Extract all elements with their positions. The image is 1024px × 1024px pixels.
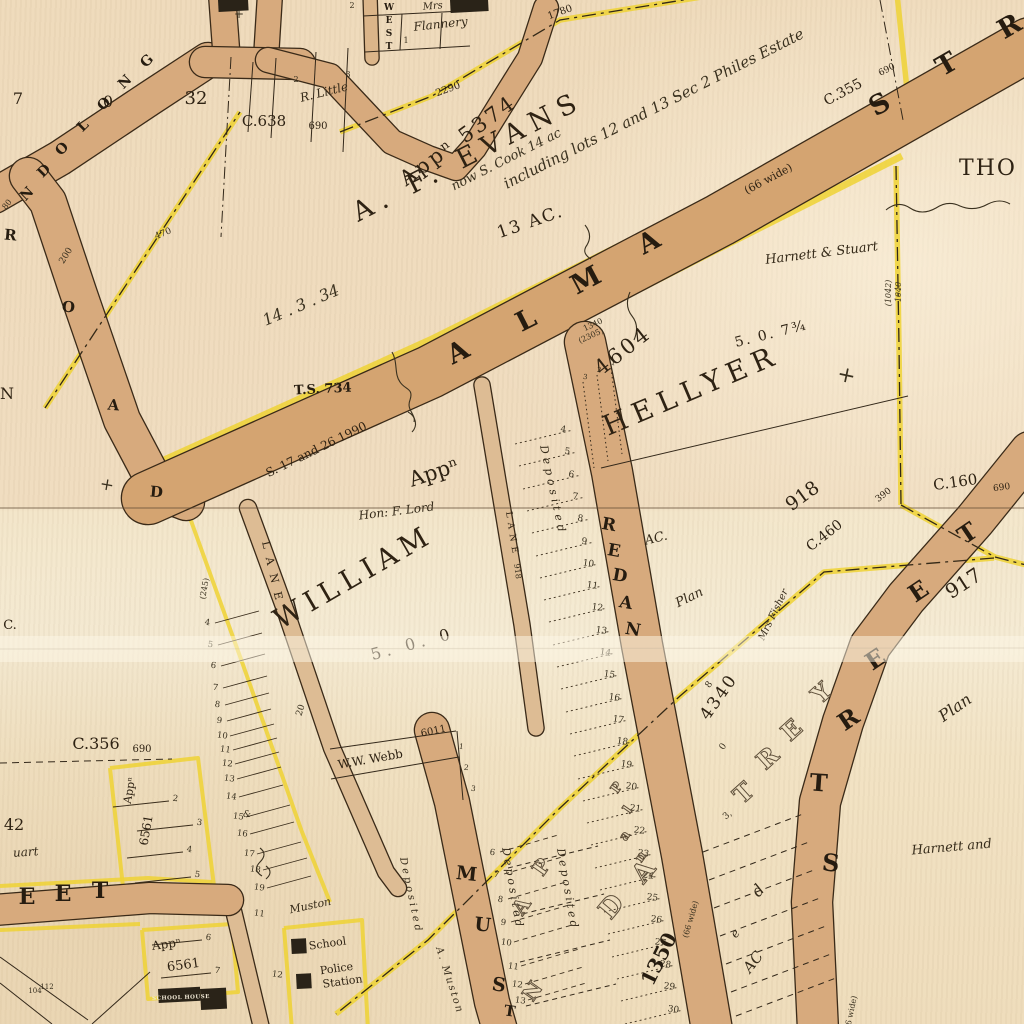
number-7: 7 [13, 89, 23, 108]
italic-d: d [747, 880, 768, 900]
lots-william-west-lot-14: 14 [225, 791, 237, 802]
map-drawing: 4567891011121314151617181945678910111213… [0, 0, 1024, 1024]
lots-school-block-lot-11: 11 [253, 908, 265, 919]
pen-date: 14 . 3 . 34 [260, 280, 342, 329]
lots-william-west-rung-4 [215, 611, 259, 623]
lots-muston-strip-lot-10: 10 [500, 937, 512, 948]
building-footprint-3 [296, 973, 312, 989]
pen-squiggle-0 [886, 201, 1010, 212]
appn-william: Appⁿ [405, 453, 462, 492]
owner-harnett-stuart: Harnett & Stuart [763, 239, 879, 268]
appn-6561-lower-num: 6561 [166, 956, 201, 975]
street-west-w: W [383, 3, 395, 13]
measure-3comma: 3, [721, 809, 734, 822]
bracket-245: (245) [198, 577, 211, 600]
lots-deposited-strip-lot-8: 8 [577, 514, 584, 525]
number-112: 112 [40, 983, 53, 991]
lot-3-little: 3 [345, 70, 350, 79]
street-mus-m: M [455, 862, 478, 886]
lots-muston-strip-rung-11 [521, 949, 579, 966]
lots-william-west-lot-6: 6 [210, 661, 217, 672]
lots-deposited-strip-lot-12: 12 [591, 602, 604, 613]
number-1350: 1350 [636, 929, 682, 990]
appn-6561-lower: Appⁿ [150, 935, 182, 953]
building-footprint-1 [450, 0, 489, 13]
street-eet-t: T [92, 878, 109, 904]
owner-a-muston: A. Muston [433, 945, 465, 1016]
map-canvas: 4567891011121314151617181945678910111213… [0, 0, 1024, 1024]
lots-deposited-strip-lot-19: 19 [620, 759, 633, 771]
lots-6561-upper-rung-4 [127, 852, 183, 858]
lot-2-little: 2 [293, 75, 298, 84]
hollow-d: D [593, 889, 630, 926]
lots-william-west-rung-17 [257, 842, 301, 854]
lot-1-flannery: 1 [403, 36, 408, 45]
parcel-line-0 [221, 57, 231, 237]
parcel-line-30 [520, 940, 610, 962]
hollow-e: E [775, 713, 808, 747]
lots-william-west-lot-4: 4 [204, 618, 211, 629]
road-fill-4 [28, 176, 186, 502]
deposited-3: Deposited [554, 846, 581, 931]
street-road-o: O [61, 297, 76, 316]
lots-william-west-rung-5 [218, 633, 262, 645]
lots-webb-strip-lot-2: 2 [463, 763, 469, 773]
poi-school: School [308, 934, 347, 952]
parcel-line-17 [92, 972, 150, 1024]
hollow-t: T [727, 776, 760, 810]
lots-william-west-lot-12: 12 [221, 758, 233, 769]
pen-ampersand: & [243, 810, 251, 820]
owner-mrs-fisher: Mrs Fisher [756, 586, 791, 643]
lots-william-west-rung-8 [225, 693, 269, 705]
lots-deposited-strip-lot-5: 5 [564, 447, 571, 458]
lots-william-west-lot-17: 17 [243, 848, 255, 859]
street-mus-u: U [473, 913, 492, 937]
lots-6561-upper-lot-5: 5 [194, 870, 201, 881]
street-eet-e1: E [19, 884, 36, 910]
lots-deposited-strip-lot-4: 4 [560, 425, 567, 436]
road-fill-14 [812, 452, 1024, 1024]
measure-1040: 1040 [894, 282, 903, 302]
owner-uart: uart [13, 844, 40, 860]
pen-cross-junction: + [234, 7, 244, 21]
lots-deposited-strip-lot-14: 14 [599, 647, 612, 659]
appn-6561-upper: Appⁿ [121, 776, 139, 806]
lots-william-west-lot-18: 18 [249, 864, 261, 875]
letter-n-partial: N [0, 384, 14, 403]
lots-william-west-rung-9 [227, 709, 271, 721]
pen-cross-hellyer: + [835, 361, 858, 389]
parcel-line-21 [703, 814, 803, 852]
lots-deposited-strip-lot-20: 20 [625, 781, 638, 793]
italic-e: e [727, 926, 742, 940]
owner-hon-f-lord: Hon: F. Lord [357, 499, 435, 522]
hollow-plan-a: a [617, 828, 634, 844]
lots-deposited-strip-lot-16: 16 [608, 692, 621, 704]
lots-muston-strip-lot-6: 6 [489, 848, 496, 859]
owner-tho: THO [959, 156, 1017, 181]
lots-school-block: 1112 [253, 908, 283, 980]
hollow-r: R [750, 740, 785, 776]
deposited-1: Deposited [537, 443, 569, 537]
lots-william-west-lot-11: 11 [219, 744, 231, 755]
lots-muston-strip-lot-11: 11 [507, 961, 519, 972]
yellow-boundary-11 [0, 924, 140, 930]
number-32: 32 [185, 88, 208, 109]
street-road-a: A [106, 395, 121, 414]
street-west-s: S [386, 29, 393, 39]
owner-flannery: Flannery [412, 14, 469, 34]
lots-william-west-lot-19: 19 [253, 882, 265, 893]
street-eet-e2: E [55, 881, 72, 907]
area-13ac: 13 AC. [494, 202, 566, 243]
measure-470: 470 [153, 226, 173, 242]
lots-6561-upper-lot-2: 2 [172, 794, 179, 805]
parcel-line-8 [400, 14, 402, 50]
lots-william-west-lot-9: 9 [216, 716, 223, 727]
street-west-e: E [386, 16, 393, 26]
lots-deposited-strip-lot-9: 9 [581, 537, 588, 548]
lane-west-20: 20 [295, 703, 308, 717]
lots-deposited-strip-lot-6: 6 [568, 470, 575, 481]
measure-1042: (1042) [884, 280, 893, 307]
ts-734: T.S. 734 [294, 381, 352, 399]
lots-deposited-strip-lot-11: 11 [586, 580, 599, 591]
number-4340-0: 0 [718, 741, 730, 752]
lot-2-flannery: 2 [349, 1, 354, 10]
cert-c356: C.356 [72, 734, 119, 753]
lots-deposited-strip-lot-22: 22 [633, 825, 646, 836]
road-fill-6 [370, 0, 372, 58]
cert-c355: C.355 [821, 76, 865, 110]
lots-webb-strip-lot-3: 3 [470, 784, 476, 794]
plan-917: Plan [934, 689, 975, 726]
lots-william-west-rung-16 [250, 822, 294, 834]
street-road-r: R [3, 226, 18, 245]
lots-6561-lower-lot-6: 6 [205, 933, 212, 944]
lots-william-west-rung-13 [237, 767, 281, 779]
owner-muston: Muston [287, 895, 332, 917]
pen-squiggle-3 [585, 225, 591, 259]
lots-william-west-rung-14 [239, 785, 283, 797]
lots-muston-strip-lot-7: 7 [493, 870, 500, 881]
pen-cross-road: + [98, 474, 116, 496]
lots-william-west-lot-7: 7 [212, 683, 219, 694]
owner-william: WILLIAM [267, 518, 439, 636]
number-42: 42 [4, 815, 24, 834]
street-ndolong-g: G [137, 51, 157, 71]
lots-william-west-lot-13: 13 [223, 773, 235, 784]
appn-6561-upper-num: 6561 [137, 814, 156, 847]
lots-deposited-strip-lot-18: 18 [616, 736, 629, 748]
lots-6561-upper: 2345 [113, 794, 203, 883]
street-street-s: S [821, 847, 841, 878]
street-street-t1: T [809, 767, 829, 797]
yellow-boundary-16 [190, 518, 330, 902]
lots-school-block-lot-12: 12 [271, 969, 283, 980]
lots-deposited-strip-lot-30: 30 [667, 1004, 680, 1016]
street-west-t: T [386, 42, 393, 52]
building-footprint-2 [291, 938, 307, 954]
lots-muston-strip-lot-8: 8 [497, 895, 504, 906]
number-918: 918 [781, 477, 823, 516]
lots-muston-strip-lot-9: 9 [500, 918, 507, 929]
lots-deposited-strip-lot-17: 17 [612, 714, 625, 726]
measure-390: 390 [874, 486, 894, 505]
italic-ac: AC [738, 947, 767, 978]
yellow-boundary-14 [284, 928, 292, 1024]
lots-deposited-strip-lot-15: 15 [603, 669, 616, 681]
street-road-d: D [149, 482, 164, 501]
lots-webb-strip-lot-1: 1 [458, 742, 464, 752]
lots-deposited-strip-lot-10: 10 [582, 558, 595, 570]
lots-6561-lower-lot-7: 7 [214, 966, 221, 977]
lots-deposited-strip-lot-13: 13 [595, 625, 608, 637]
lots-6561-upper-lot-4: 4 [186, 845, 193, 856]
cert-c-partial: C. [3, 618, 17, 633]
lots-deposited-strip-lot-7: 7 [572, 492, 579, 503]
cert-c638-690: 690 [308, 121, 327, 132]
ac-redan: AC. [642, 529, 669, 549]
lots-william-west-rung-15 [246, 805, 290, 817]
lots-6561-upper-lot-3: 3 [196, 818, 203, 829]
cert-c356-690: 690 [132, 744, 151, 755]
cert-c460: C.460 [803, 517, 845, 555]
cert-c638: C.638 [242, 112, 286, 130]
lots-william-west-rung-18 [263, 858, 307, 870]
lots-deposited-strip-lot-26: 26 [650, 914, 663, 926]
owner-harnett-and: Harnett and [910, 837, 992, 859]
hollow-p1: P [527, 854, 555, 880]
lots-william-west-rung-7 [223, 676, 267, 688]
road-fill-9 [482, 385, 536, 728]
area-5-0-0: 5. 0. 0 [369, 623, 457, 664]
lots-deposited-strip-lot-29: 29 [663, 981, 676, 993]
lots-william-west-rung-19 [267, 876, 311, 888]
owner-mrs: Mrs [421, 0, 443, 13]
lots-william-west-lot-8: 8 [214, 700, 221, 711]
lots-william-west-lot-10: 10 [216, 730, 228, 741]
street-66wide-frag: (66 wide) [842, 995, 859, 1024]
lots-deposited-strip-lot-25: 25 [646, 892, 659, 904]
measure-2290: 2290 [434, 80, 462, 99]
lots-william-west-lot-16: 16 [236, 828, 248, 839]
lots-william-west-rung-12 [235, 752, 279, 764]
plan-redan: Plan [672, 585, 706, 612]
hollow-plan-p: P [608, 780, 626, 797]
parcel-line-7 [365, 46, 470, 52]
